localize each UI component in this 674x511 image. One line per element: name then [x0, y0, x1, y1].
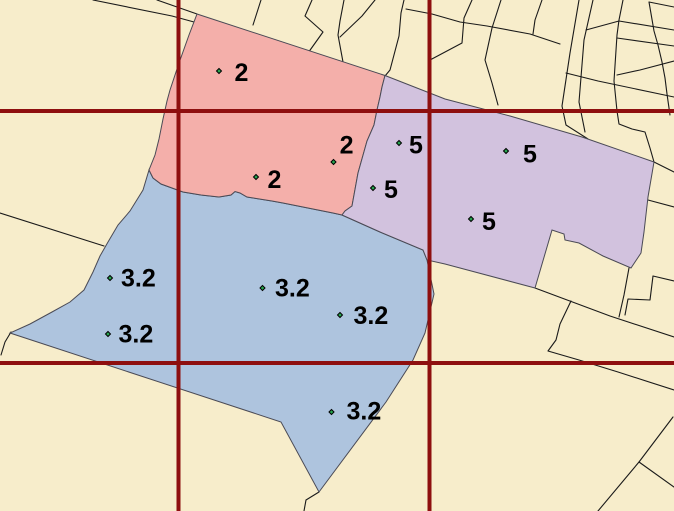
svg-text:5: 5: [523, 141, 537, 169]
svg-text:2: 2: [268, 166, 282, 194]
svg-text:3.2: 3.2: [121, 264, 156, 292]
svg-text:3.2: 3.2: [119, 320, 154, 348]
svg-text:3.2: 3.2: [354, 302, 389, 330]
svg-text:2: 2: [235, 59, 249, 87]
svg-text:5: 5: [384, 176, 398, 204]
svg-text:2: 2: [340, 132, 354, 160]
svg-text:3.2: 3.2: [347, 398, 382, 426]
svg-text:5: 5: [409, 132, 423, 160]
svg-text:5: 5: [482, 208, 496, 236]
svg-text:3.2: 3.2: [275, 274, 310, 302]
